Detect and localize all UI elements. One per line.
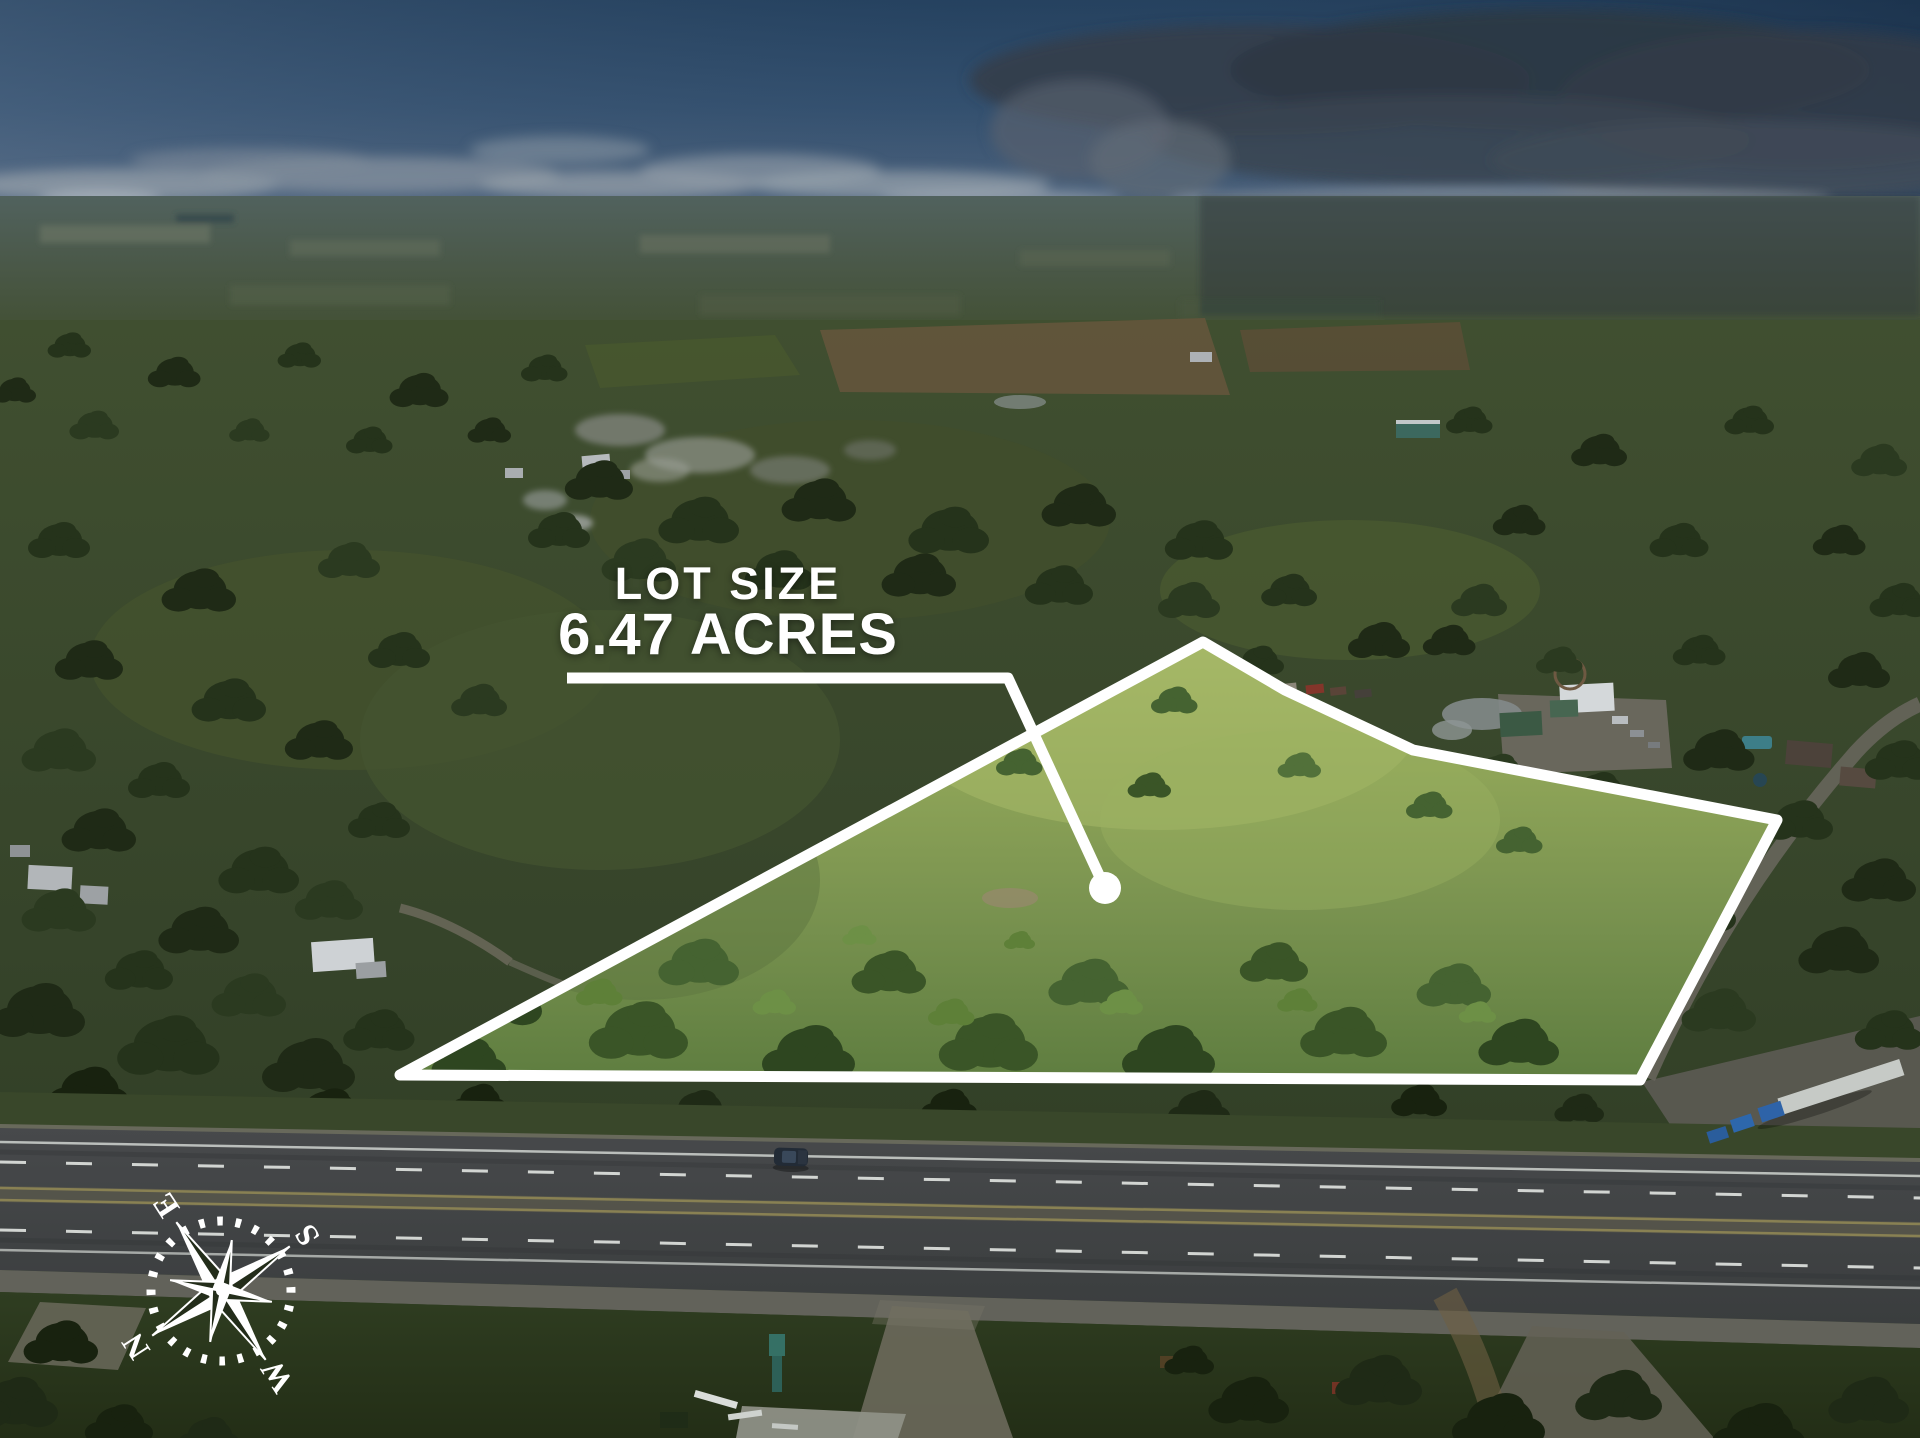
aerial-photo: N E S W LOT SIZE 6.47 ACRES [0,0,1920,1438]
lot-size-title: LOT SIZE [528,561,928,606]
car-on-highway [773,1147,810,1172]
lot-marker-dot [1089,872,1121,904]
lot-size-value: 6.47 ACRES [523,606,933,664]
aerial-photo-scene: N E S W [0,0,1920,1438]
distant-terrain [0,196,1920,336]
